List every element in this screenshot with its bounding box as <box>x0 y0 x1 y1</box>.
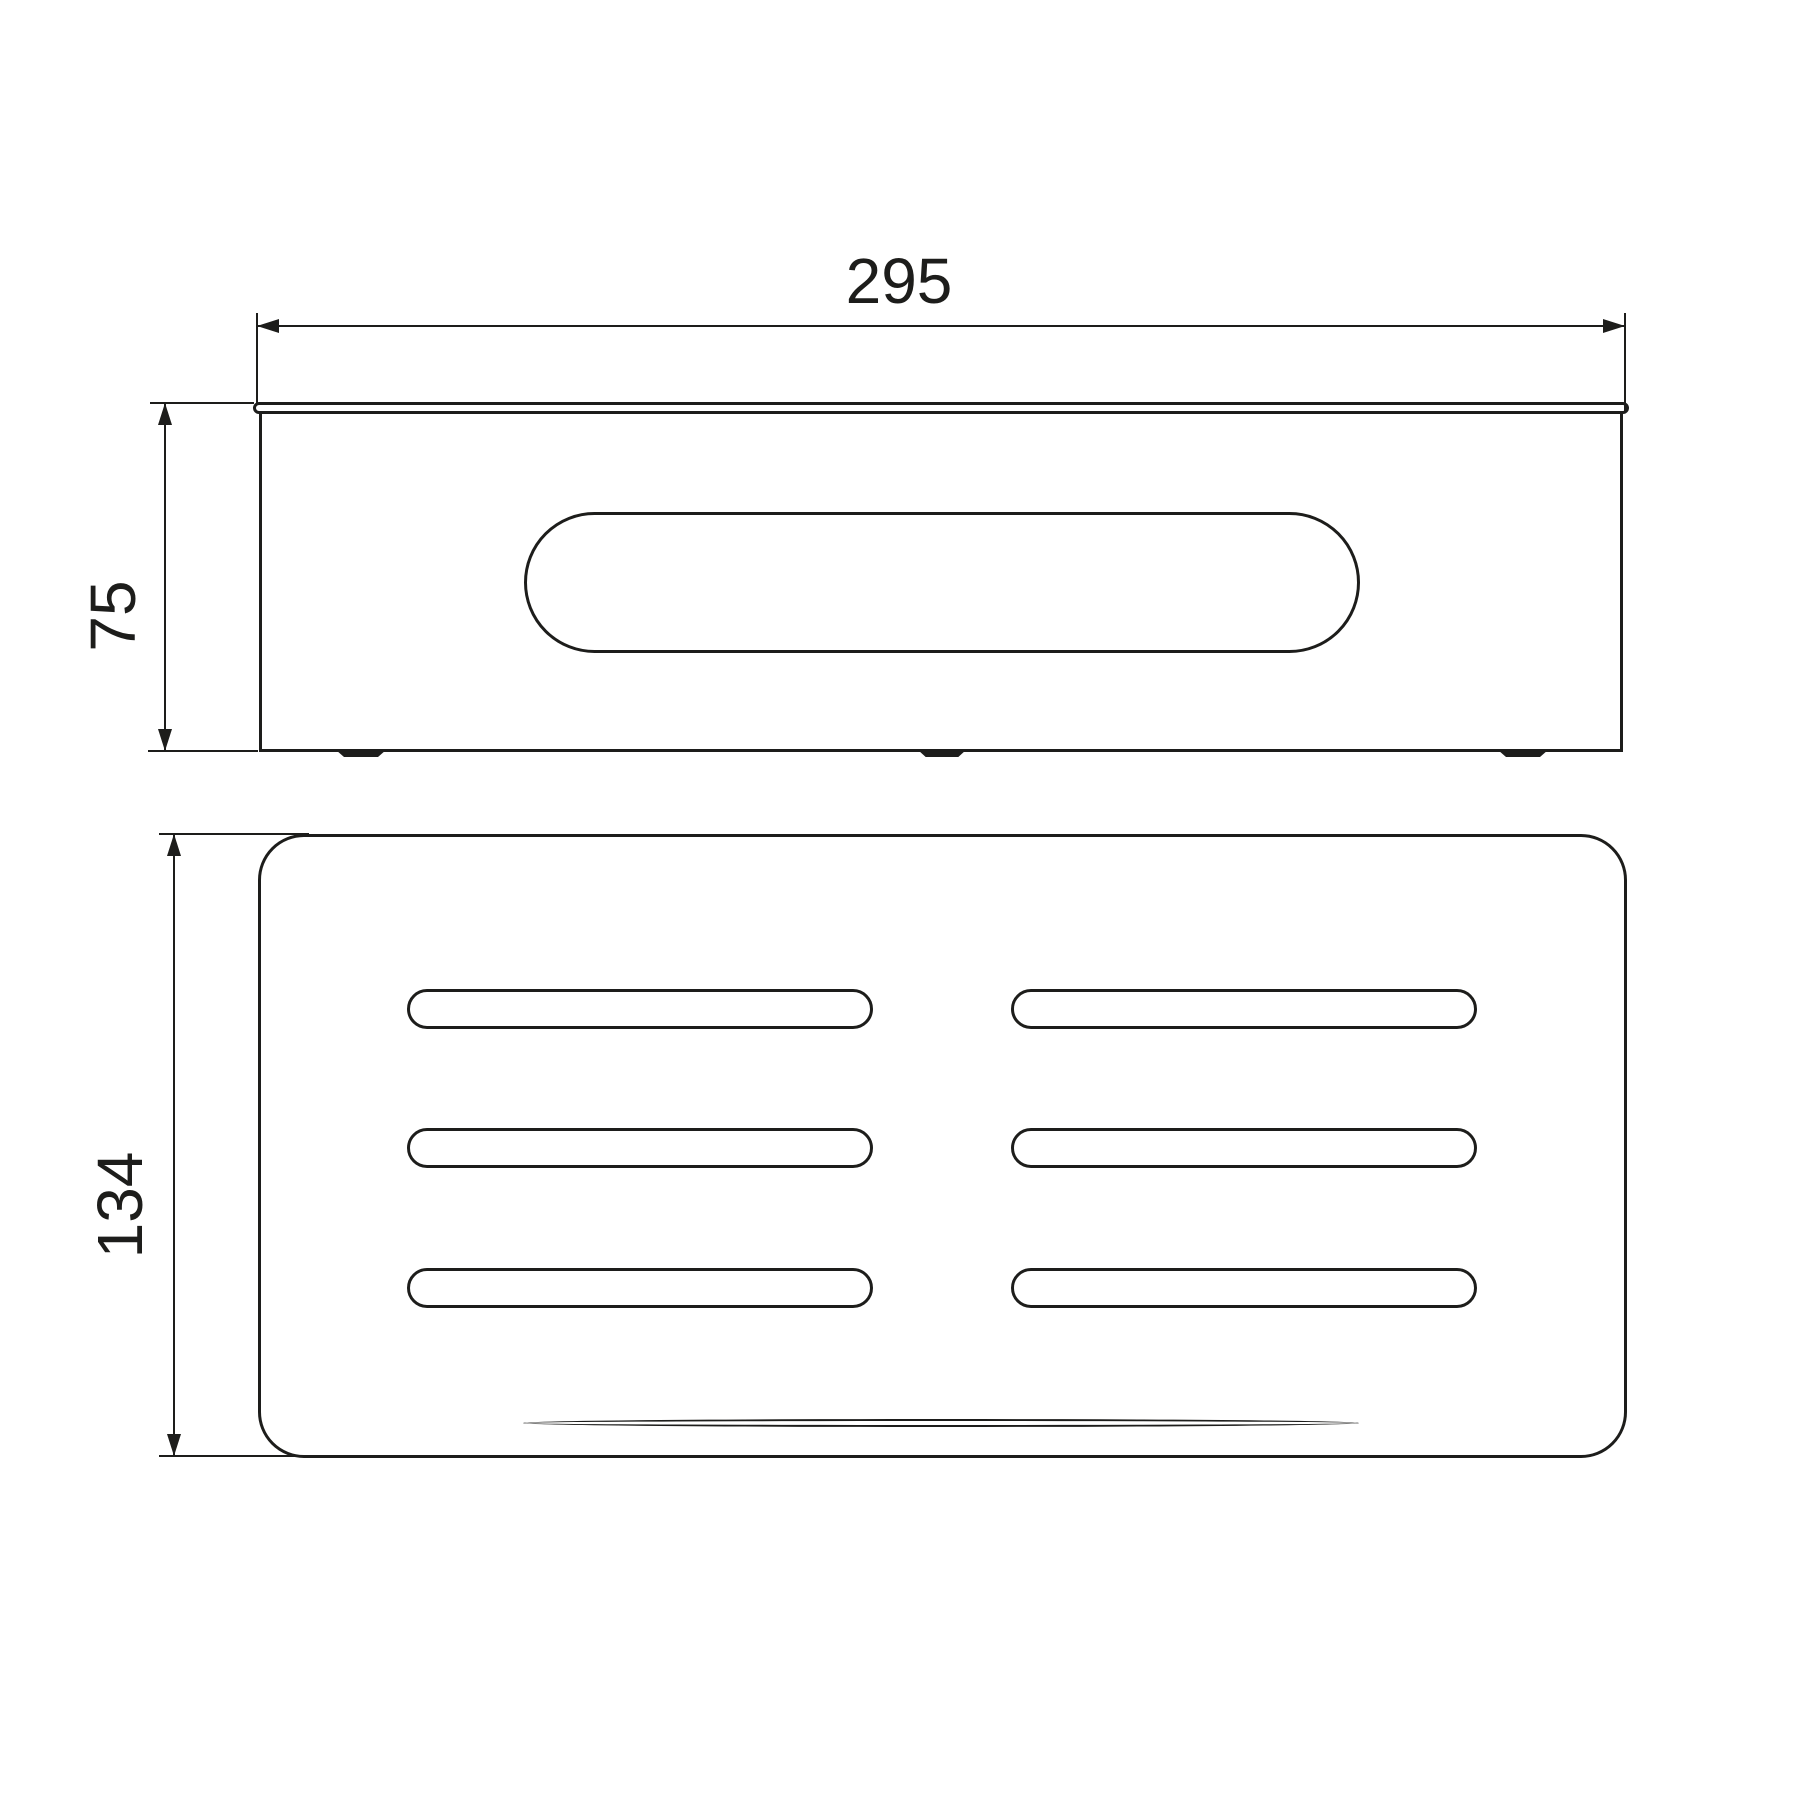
top-view-handle-slot-projection <box>523 1419 1359 1427</box>
drawing-canvas: 295 75 134 <box>0 0 1800 1800</box>
front-view-foot-middle <box>918 750 966 757</box>
dim-depth-label: 134 <box>88 1152 152 1259</box>
dim-height-label: 75 <box>81 580 145 651</box>
top-view-slot-row3-left <box>407 1268 873 1308</box>
dim-depth-extension-bottom <box>159 1455 307 1457</box>
dim-depth-line <box>173 834 175 1456</box>
top-view-slot-row2-right <box>1011 1128 1477 1168</box>
dim-width-line <box>257 325 1625 327</box>
dim-width-label: 295 <box>846 249 953 313</box>
top-view-slot-row1-left <box>407 989 873 1029</box>
dim-height-arrowhead-up-icon <box>158 403 172 425</box>
top-view-slot-row1-right <box>1011 989 1477 1029</box>
dim-height-line <box>164 403 166 751</box>
front-view-handle-slot <box>524 512 1360 653</box>
top-view-slot-row3-right <box>1011 1268 1477 1308</box>
top-view-slot-row2-left <box>407 1128 873 1168</box>
dim-width-arrowhead-right-icon <box>1603 319 1625 333</box>
dim-width-arrowhead-left-icon <box>257 319 279 333</box>
front-view-foot-left <box>336 750 386 757</box>
dim-depth-arrowhead-down-icon <box>167 1434 181 1456</box>
dim-depth-extension-top <box>159 833 309 835</box>
dim-height-arrowhead-down-icon <box>158 729 172 751</box>
front-view-foot-right <box>1498 750 1548 757</box>
dim-depth-arrowhead-up-icon <box>167 834 181 856</box>
